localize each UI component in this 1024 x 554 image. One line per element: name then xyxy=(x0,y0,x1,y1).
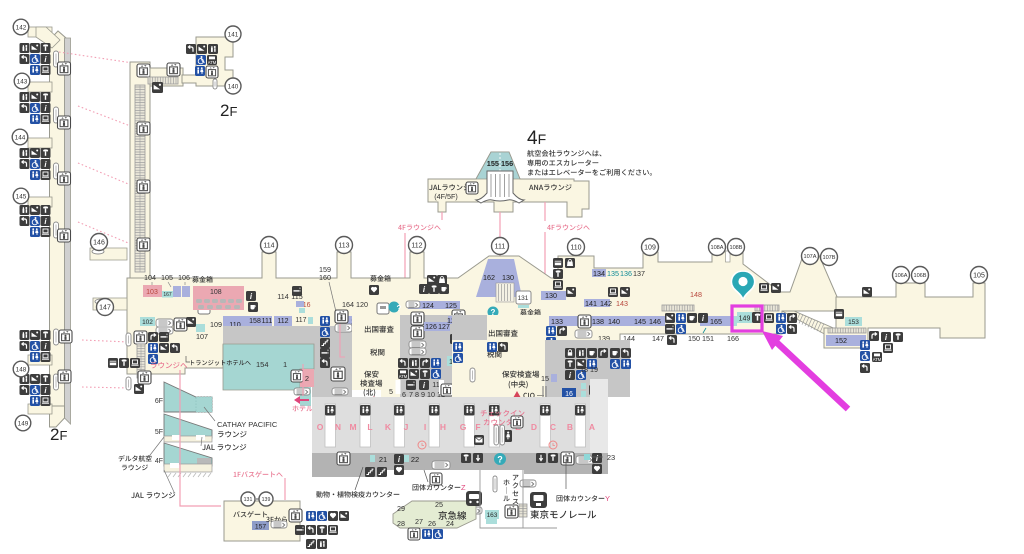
svg-text:134: 134 xyxy=(593,269,605,278)
svg-text:145: 145 xyxy=(16,193,27,200)
svg-text:107B: 107B xyxy=(822,255,835,261)
svg-text:146: 146 xyxy=(93,240,105,247)
svg-text:26: 26 xyxy=(428,519,436,528)
svg-text:D: D xyxy=(531,422,537,432)
svg-text:I: I xyxy=(424,422,426,432)
svg-text:109: 109 xyxy=(210,320,222,329)
svg-text:?: ? xyxy=(397,304,402,313)
svg-text:22: 22 xyxy=(411,455,419,464)
svg-text:166: 166 xyxy=(727,334,739,343)
svg-text:126: 126 xyxy=(425,324,437,331)
svg-text:F: F xyxy=(475,422,480,432)
svg-text:167: 167 xyxy=(163,292,172,298)
svg-text:Y: Y xyxy=(605,494,610,503)
svg-text:112: 112 xyxy=(277,318,288,325)
svg-text:135: 135 xyxy=(607,269,619,278)
svg-text:M: M xyxy=(349,422,356,432)
svg-text:C: C xyxy=(550,422,556,432)
svg-text:142: 142 xyxy=(16,24,27,31)
svg-text:109: 109 xyxy=(644,245,656,252)
svg-text:147: 147 xyxy=(99,305,111,312)
svg-text:160: 160 xyxy=(319,273,331,282)
svg-text:2F: 2F xyxy=(50,425,67,444)
svg-text:K: K xyxy=(385,422,392,432)
svg-text:A: A xyxy=(589,422,595,432)
svg-text:L: L xyxy=(367,422,372,432)
svg-text:142: 142 xyxy=(600,299,612,308)
svg-text:146: 146 xyxy=(649,317,661,326)
svg-text:157: 157 xyxy=(255,524,267,531)
svg-text:(4F/5F): (4F/5F) xyxy=(434,192,458,201)
svg-text:164 120: 164 120 xyxy=(342,300,368,309)
svg-text:147: 147 xyxy=(652,334,664,343)
svg-text:4F: 4F xyxy=(155,458,163,465)
svg-text:O: O xyxy=(317,422,324,432)
svg-text:149: 149 xyxy=(739,316,751,323)
svg-text:145: 145 xyxy=(634,317,646,326)
svg-text:6F: 6F xyxy=(155,398,163,405)
svg-text:153: 153 xyxy=(848,319,859,326)
svg-text:?: ? xyxy=(497,455,503,465)
svg-text:102: 102 xyxy=(142,319,153,326)
svg-text:124: 124 xyxy=(422,303,434,310)
svg-text:106B: 106B xyxy=(913,273,926,279)
svg-text:105: 105 xyxy=(973,273,985,280)
svg-text:29: 29 xyxy=(397,504,405,513)
svg-text:112: 112 xyxy=(411,243,422,250)
svg-text:27: 27 xyxy=(415,517,423,526)
svg-text:G: G xyxy=(460,422,467,432)
svg-text:106: 106 xyxy=(178,273,190,282)
svg-text:133: 133 xyxy=(551,317,563,326)
svg-text:136: 136 xyxy=(620,269,632,278)
svg-text:21: 21 xyxy=(379,455,387,464)
svg-text:J: J xyxy=(404,422,409,432)
svg-text:141: 141 xyxy=(228,31,239,38)
svg-text:125: 125 xyxy=(445,303,457,310)
svg-text:15: 15 xyxy=(541,374,549,383)
svg-text:162: 162 xyxy=(483,273,495,282)
svg-text:137: 137 xyxy=(633,269,645,278)
svg-text:114: 114 xyxy=(277,292,288,301)
svg-text:111: 111 xyxy=(495,244,506,251)
svg-text:5: 5 xyxy=(389,387,393,396)
svg-text:11: 11 xyxy=(432,380,439,389)
svg-text:B: B xyxy=(567,422,573,432)
svg-text:139: 139 xyxy=(262,497,271,503)
svg-text:2: 2 xyxy=(305,374,309,383)
svg-text:149: 149 xyxy=(18,420,29,427)
svg-text:131: 131 xyxy=(244,497,253,503)
svg-text:H: H xyxy=(440,422,446,432)
svg-text:143: 143 xyxy=(616,299,628,308)
svg-text:144: 144 xyxy=(15,134,26,141)
svg-text:23: 23 xyxy=(607,453,615,462)
svg-text:5F: 5F xyxy=(155,429,163,436)
svg-text:127: 127 xyxy=(438,324,450,331)
svg-text:140: 140 xyxy=(228,83,239,90)
svg-text:111: 111 xyxy=(262,318,273,325)
svg-text:CATHAY PACIFIC: CATHAY PACIFIC xyxy=(217,420,278,429)
svg-text:155 156: 155 156 xyxy=(487,159,513,168)
svg-text:148: 148 xyxy=(690,290,702,299)
svg-text:163: 163 xyxy=(487,512,498,519)
svg-text:16: 16 xyxy=(565,391,573,398)
svg-text:131: 131 xyxy=(518,295,529,302)
svg-text:108A: 108A xyxy=(710,245,723,251)
svg-text:ATM: ATM xyxy=(399,374,408,379)
svg-text:104: 104 xyxy=(144,273,156,282)
svg-text:105: 105 xyxy=(161,273,173,282)
svg-text:ATM: ATM xyxy=(873,357,882,362)
svg-text:108B: 108B xyxy=(729,245,742,251)
svg-text:114: 114 xyxy=(263,243,274,250)
svg-text:N: N xyxy=(335,422,341,432)
svg-text:148: 148 xyxy=(16,366,27,373)
svg-text:141: 141 xyxy=(585,299,597,308)
svg-text:152: 152 xyxy=(835,336,847,345)
svg-text:138: 138 xyxy=(592,317,604,326)
svg-text:143: 143 xyxy=(17,78,28,85)
svg-text:28: 28 xyxy=(397,519,405,528)
svg-text:107: 107 xyxy=(196,332,208,341)
svg-text:Z: Z xyxy=(461,483,466,492)
svg-text:107A: 107A xyxy=(803,254,816,260)
svg-text:2F: 2F xyxy=(220,101,237,120)
svg-text:106A: 106A xyxy=(894,273,907,279)
svg-text:110: 110 xyxy=(570,245,581,252)
svg-text:165: 165 xyxy=(710,317,722,326)
svg-text:24: 24 xyxy=(446,519,454,528)
svg-text:113: 113 xyxy=(338,243,349,250)
svg-text:117: 117 xyxy=(295,317,306,324)
svg-text:25: 25 xyxy=(435,500,443,509)
svg-text:150 151: 150 151 xyxy=(688,334,714,343)
svg-text:140: 140 xyxy=(608,317,620,326)
svg-text:4F: 4F xyxy=(527,128,546,149)
svg-text:18: 18 xyxy=(580,365,588,374)
svg-text:130: 130 xyxy=(545,291,557,300)
svg-text:19: 19 xyxy=(590,365,598,374)
svg-text:103: 103 xyxy=(146,289,158,296)
svg-text:158: 158 xyxy=(249,318,261,325)
svg-text:130: 130 xyxy=(502,273,514,282)
svg-text:1: 1 xyxy=(283,360,287,369)
svg-text:108: 108 xyxy=(210,289,222,296)
svg-text:ATM: ATM xyxy=(208,60,217,65)
svg-text:154: 154 xyxy=(256,360,269,369)
